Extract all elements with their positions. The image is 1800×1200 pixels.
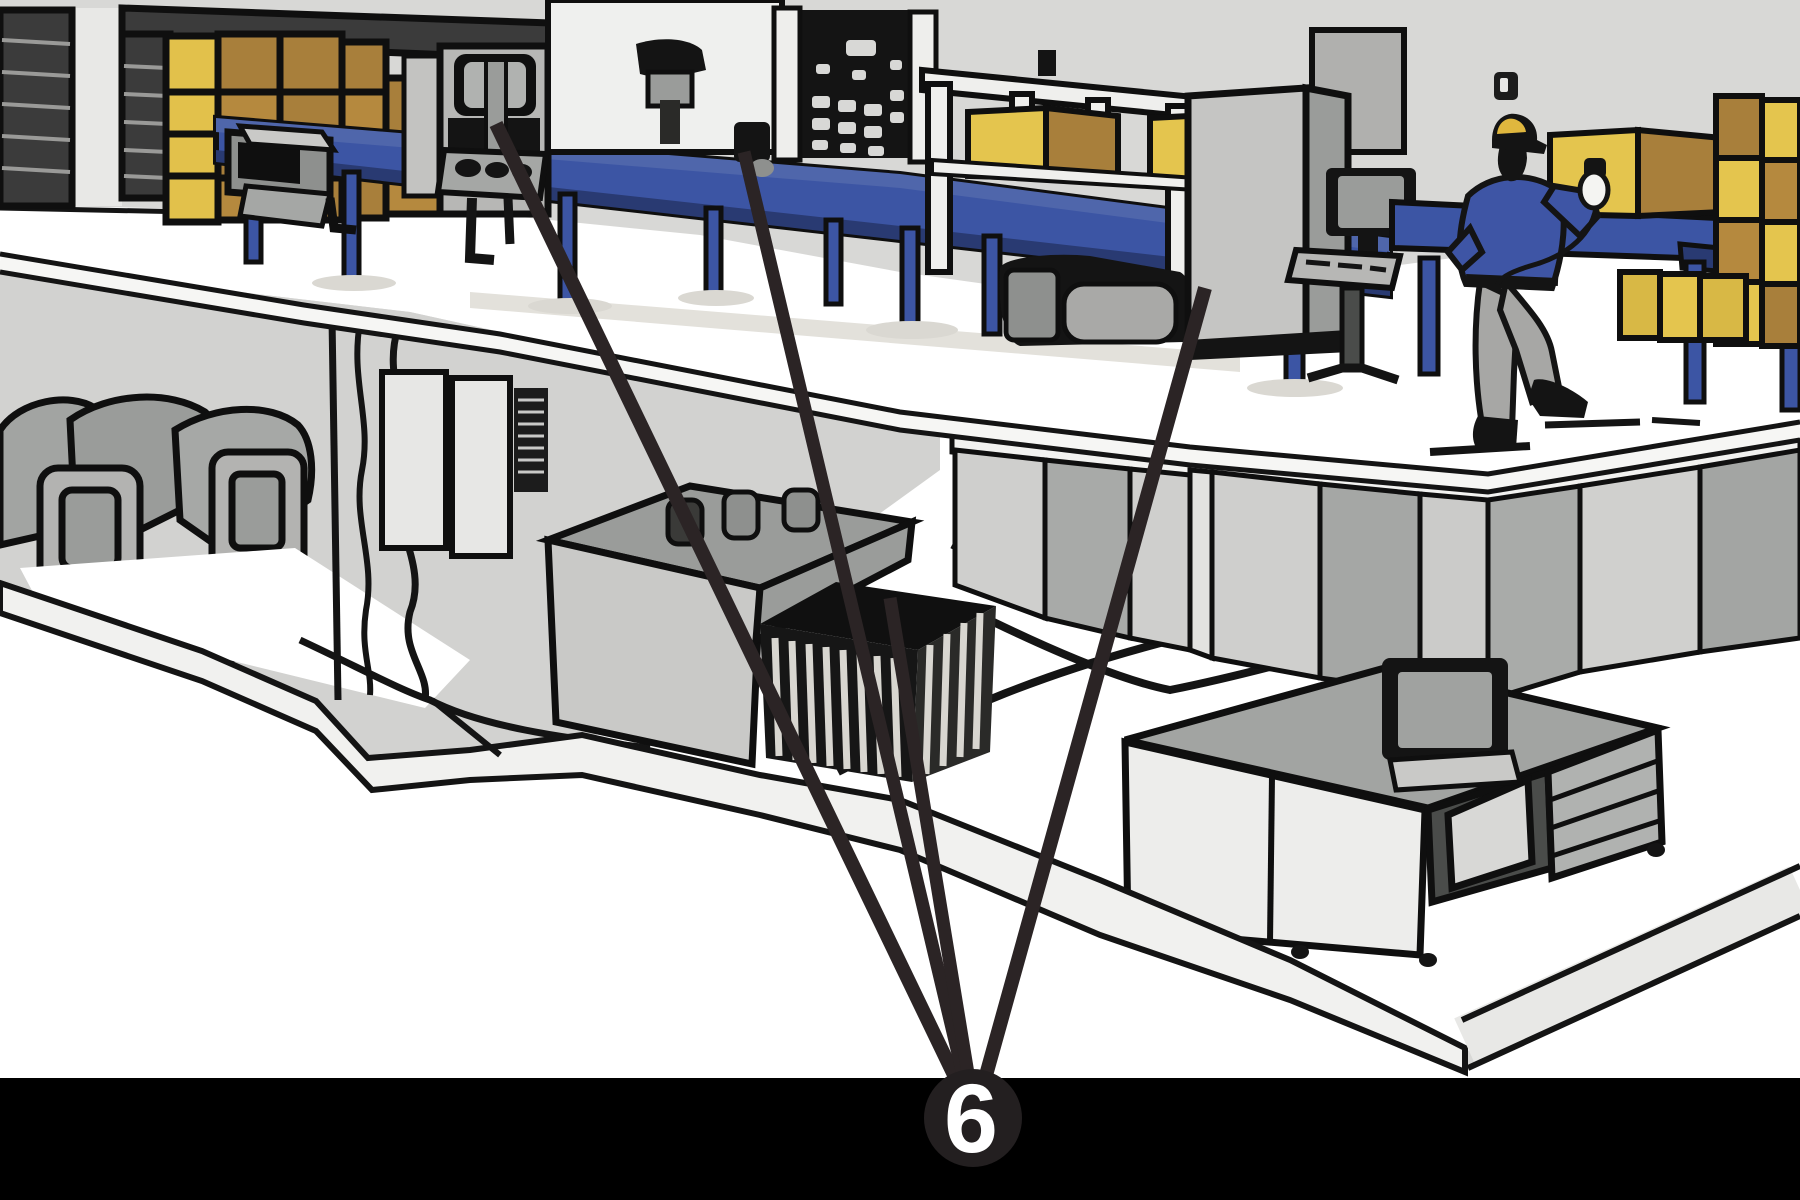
svg-text:6: 6 (944, 1064, 998, 1173)
